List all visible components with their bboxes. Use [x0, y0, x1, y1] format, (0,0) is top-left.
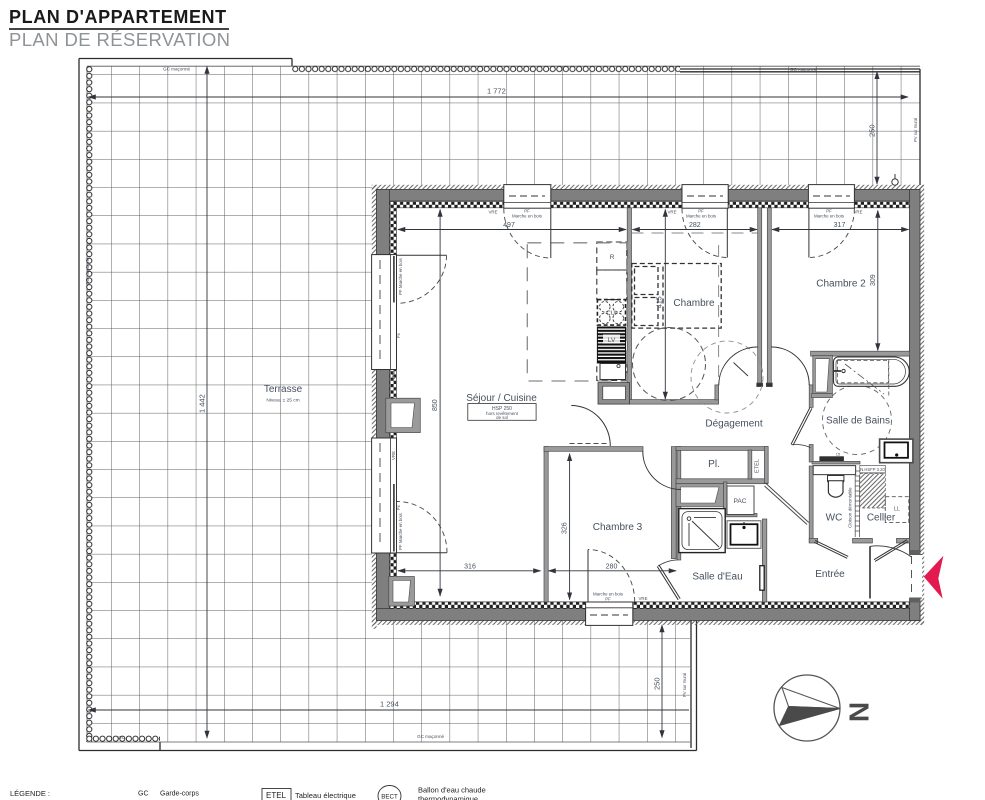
svg-text:Chambre 2: Chambre 2	[816, 279, 866, 290]
svg-text:PF: PF	[605, 597, 611, 602]
svg-text:BECT: BECT	[381, 794, 398, 800]
svg-text:VRE: VRE	[391, 451, 396, 460]
svg-text:GC maçonné: GC maçonné	[163, 67, 191, 72]
svg-text:15: 15	[836, 452, 841, 457]
svg-text:PF Marche en bois: PF Marche en bois	[398, 512, 403, 550]
svg-text:280: 280	[606, 563, 618, 570]
svg-text:Niveau ± 25 cm: Niveau ± 25 cm	[266, 398, 299, 404]
svg-text:1 294: 1 294	[380, 700, 399, 709]
svg-text:Marche en bois: Marche en bois	[814, 214, 845, 219]
svg-text:CUI: CUI	[606, 311, 617, 317]
svg-text:GC maçonné: GC maçonné	[417, 734, 445, 739]
svg-text:250: 250	[653, 677, 662, 690]
svg-text:Salle de Bains: Salle de Bains	[826, 415, 890, 426]
svg-text:VRE: VRE	[488, 210, 497, 215]
svg-text:N: N	[844, 702, 875, 722]
svg-text:PAC: PAC	[733, 498, 746, 505]
svg-text:PF Marche en bois: PF Marche en bois	[398, 257, 403, 295]
svg-text:PV sur mural: PV sur mural	[913, 118, 918, 142]
svg-text:ETEL: ETEL	[266, 791, 287, 800]
svg-text:WC: WC	[826, 513, 843, 524]
svg-text:Cellier: Cellier	[867, 513, 896, 524]
svg-text:Entrée: Entrée	[815, 569, 845, 580]
svg-text:Marche en bois: Marche en bois	[512, 214, 543, 219]
svg-text:thermodynamique: thermodynamique	[418, 795, 478, 800]
svg-text:LÉGENDE :: LÉGENDE :	[10, 789, 50, 798]
svg-text:de sol: de sol	[496, 415, 508, 420]
svg-text:Tableau électrique: Tableau électrique	[295, 791, 356, 800]
svg-text:Séjour / Cuisine: Séjour / Cuisine	[466, 393, 537, 404]
svg-text:R: R	[610, 254, 615, 261]
svg-text:Salle d'Eau: Salle d'Eau	[692, 572, 742, 583]
svg-text:GC maçonné: GC maçonné	[85, 257, 90, 285]
svg-text:GC: GC	[118, 735, 126, 740]
svg-text:1 442: 1 442	[198, 394, 207, 413]
svg-text:317: 317	[834, 222, 846, 229]
svg-text:Pl.: Pl.	[708, 459, 720, 470]
svg-text:ETEL: ETEL	[755, 459, 761, 473]
svg-text:VRE: VRE	[853, 210, 862, 215]
svg-text:LV: LV	[608, 337, 616, 344]
svg-text:Dégagement: Dégagement	[705, 419, 762, 430]
svg-text:282: 282	[689, 222, 701, 229]
svg-text:Cloison démontable: Cloison démontable	[848, 487, 853, 528]
svg-text:Chambre: Chambre	[673, 298, 715, 309]
svg-text:N.HSFP 3.20: N.HSFP 3.20	[860, 467, 885, 472]
svg-text:250: 250	[868, 124, 877, 137]
svg-text:GC: GC	[138, 791, 149, 798]
svg-text:326: 326	[561, 522, 568, 534]
svg-text:PLAN DE RÉSERVATION: PLAN DE RÉSERVATION	[9, 29, 230, 50]
svg-text:Chambre 3: Chambre 3	[593, 522, 643, 533]
svg-text:1 772: 1 772	[487, 87, 506, 96]
svg-text:Fx: Fx	[396, 504, 401, 510]
svg-text:Terrasse: Terrasse	[264, 384, 303, 395]
svg-text:Ballon d'eau chaude: Ballon d'eau chaude	[418, 786, 486, 795]
svg-text:GC maçonné: GC maçonné	[790, 67, 818, 72]
svg-text:PLAN D'APPARTEMENT: PLAN D'APPARTEMENT	[9, 7, 227, 27]
svg-text:316: 316	[464, 563, 476, 570]
svg-text:Fx: Fx	[396, 332, 401, 338]
svg-text:Marche en bois: Marche en bois	[686, 214, 717, 219]
svg-text:VRE: VRE	[667, 210, 676, 215]
svg-text:PV sur mural: PV sur mural	[682, 673, 687, 697]
svg-text:VRE: VRE	[391, 371, 396, 380]
svg-text:850: 850	[432, 399, 439, 411]
svg-text:VRE: VRE	[638, 596, 647, 601]
svg-text:415: 415	[657, 296, 664, 308]
svg-text:Garde-corps: Garde-corps	[160, 791, 199, 798]
svg-text:497: 497	[503, 222, 515, 229]
svg-text:309: 309	[870, 274, 877, 286]
